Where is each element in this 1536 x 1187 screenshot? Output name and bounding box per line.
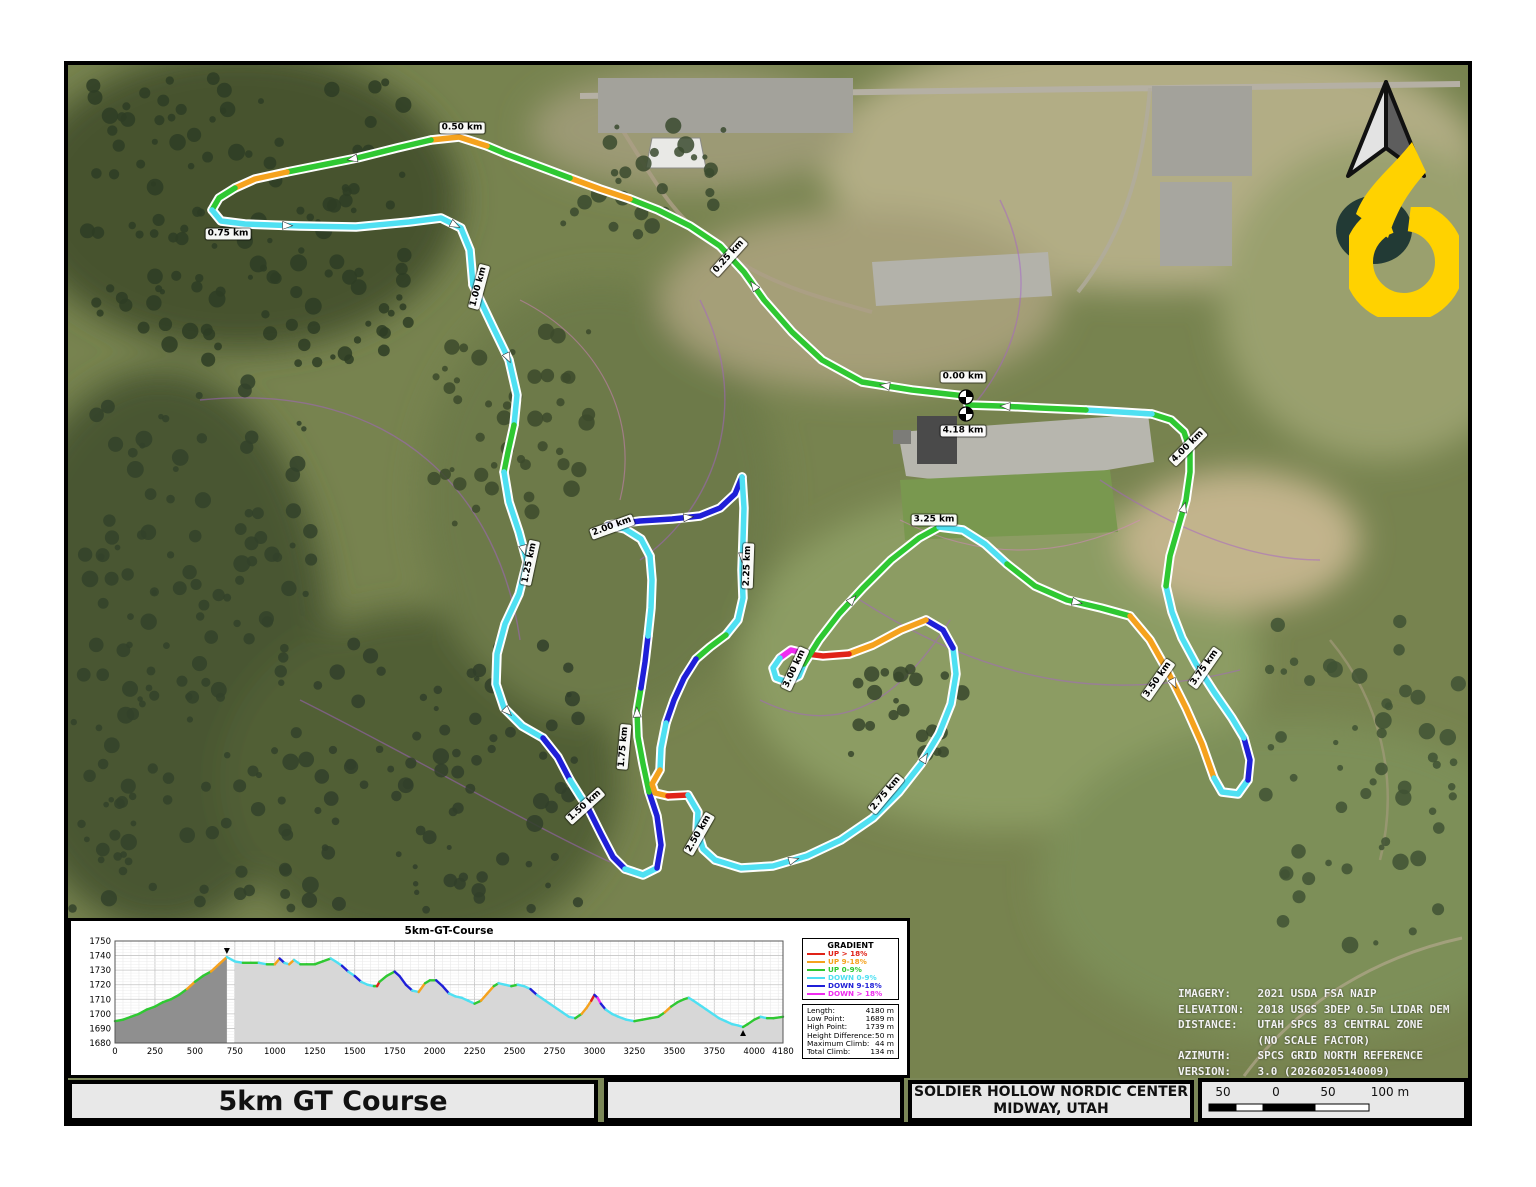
x-axis-tick: 1500 [344, 1047, 366, 1057]
credits-line: DISTANCE: UTAH SPCS 83 CENTRAL ZONE [1178, 1017, 1450, 1033]
x-axis-tick: 4000 [743, 1047, 765, 1057]
facility-name: SOLDIER HOLLOW NORDIC CENTER [914, 1084, 1188, 1101]
credits-line: IMAGERY: 2021 USDA FSA NAIP [1178, 986, 1450, 1002]
y-axis-tick: 1680 [89, 1039, 111, 1049]
facility-location: MIDWAY, UTAH [993, 1101, 1108, 1118]
course-title-block: 5km GT Course [68, 1080, 598, 1122]
x-axis-tick: 2500 [504, 1047, 526, 1057]
legend-color-line [807, 993, 825, 995]
y-axis-tick: 1700 [89, 1010, 111, 1020]
x-axis-tick: 1000 [264, 1047, 286, 1057]
empty-title-block [604, 1078, 904, 1122]
x-axis-tick: 1250 [304, 1047, 326, 1057]
elevation-profile-chart: 5km-GT-Course168016901700171017201730174… [71, 921, 907, 1075]
page: { "palette": { "up_steep":"#e02318", "up… [0, 0, 1536, 1187]
course-title: 5km GT Course [218, 1086, 447, 1117]
scale-bar-block: 50050100 m [1198, 1078, 1468, 1122]
scale-bar-label: 50 [1215, 1085, 1230, 1099]
x-axis-tick: 2750 [544, 1047, 566, 1057]
stat-label: Total Climb: [807, 1048, 850, 1056]
stat-row: Total Climb:134 m [807, 1048, 894, 1056]
chart-title: 5km-GT-Course [405, 925, 494, 937]
credits-line: ELEVATION: 2018 USGS 3DEP 0.5m LIDAR DEM [1178, 1002, 1450, 1018]
scale-bar-segment [1315, 1104, 1369, 1111]
start-marker [959, 390, 973, 404]
course-stats: Length:4180 mLow Point:1689 mHigh Point:… [802, 1004, 899, 1059]
credits-line: (NO SCALE FACTOR) [1178, 1033, 1450, 1049]
x-axis-tick: 0 [112, 1047, 117, 1057]
y-axis-tick: 1730 [89, 966, 111, 976]
y-axis-tick: 1710 [89, 995, 111, 1005]
legend-entry-label: DOWN > 18% [828, 990, 882, 998]
scale-bar-segment [1209, 1104, 1236, 1111]
elevation-profile-panel: 5km-GT-Course168016901700171017201730174… [68, 918, 910, 1078]
finish-marker [959, 407, 973, 421]
x-axis-tick: 4180 [772, 1047, 794, 1057]
scale-bar-segment [1263, 1104, 1315, 1111]
scale-bar-label: 0 [1272, 1085, 1280, 1099]
x-axis-tick: 2000 [424, 1047, 446, 1057]
parking-lot-north [598, 78, 853, 133]
legend-color-line [807, 977, 825, 979]
legend-color-line [807, 969, 825, 971]
gradient-legend: GRADIENT UP > 18%UP 9-18%UP 0-9%DOWN 0-9… [802, 938, 899, 1000]
x-axis-tick: 500 [187, 1047, 203, 1057]
scale-bar-label: 100 m [1371, 1085, 1409, 1099]
facility-title-block: SOLDIER HOLLOW NORDIC CENTER MIDWAY, UTA… [908, 1080, 1194, 1122]
y-axis-tick: 1690 [89, 1024, 111, 1034]
x-axis-tick: 3250 [624, 1047, 646, 1057]
legend-entry: DOWN > 18% [807, 990, 894, 998]
x-axis-tick: 3750 [703, 1047, 725, 1057]
scale-bar-label: 50 [1320, 1085, 1335, 1099]
legend-color-line [807, 961, 825, 963]
legend-color-line [807, 953, 825, 955]
x-axis-tick: 3500 [664, 1047, 686, 1057]
stadium-building [917, 416, 957, 464]
map-credits: IMAGERY: 2021 USDA FSA NAIPELEVATION: 20… [1178, 986, 1450, 1079]
x-axis-tick: 750 [227, 1047, 243, 1057]
x-axis-tick: 3000 [584, 1047, 606, 1057]
credits-line: VERSION: 3.0 (20260205140009) [1178, 1064, 1450, 1080]
x-axis-tick: 250 [147, 1047, 163, 1057]
parking-lot-east [1152, 86, 1252, 176]
stat-value: 134 m [870, 1048, 894, 1056]
credits-line: AZIMUTH: SPCS GRID NORTH REFERENCE [1178, 1048, 1450, 1064]
y-axis-tick: 1720 [89, 981, 111, 991]
y-axis-tick: 1750 [89, 937, 111, 947]
x-axis-tick: 2250 [464, 1047, 486, 1057]
legend-color-line [807, 985, 825, 987]
y-axis-tick: 1740 [89, 952, 111, 962]
x-axis-tick: 1750 [384, 1047, 406, 1057]
scale-bar-segment [1236, 1104, 1263, 1111]
